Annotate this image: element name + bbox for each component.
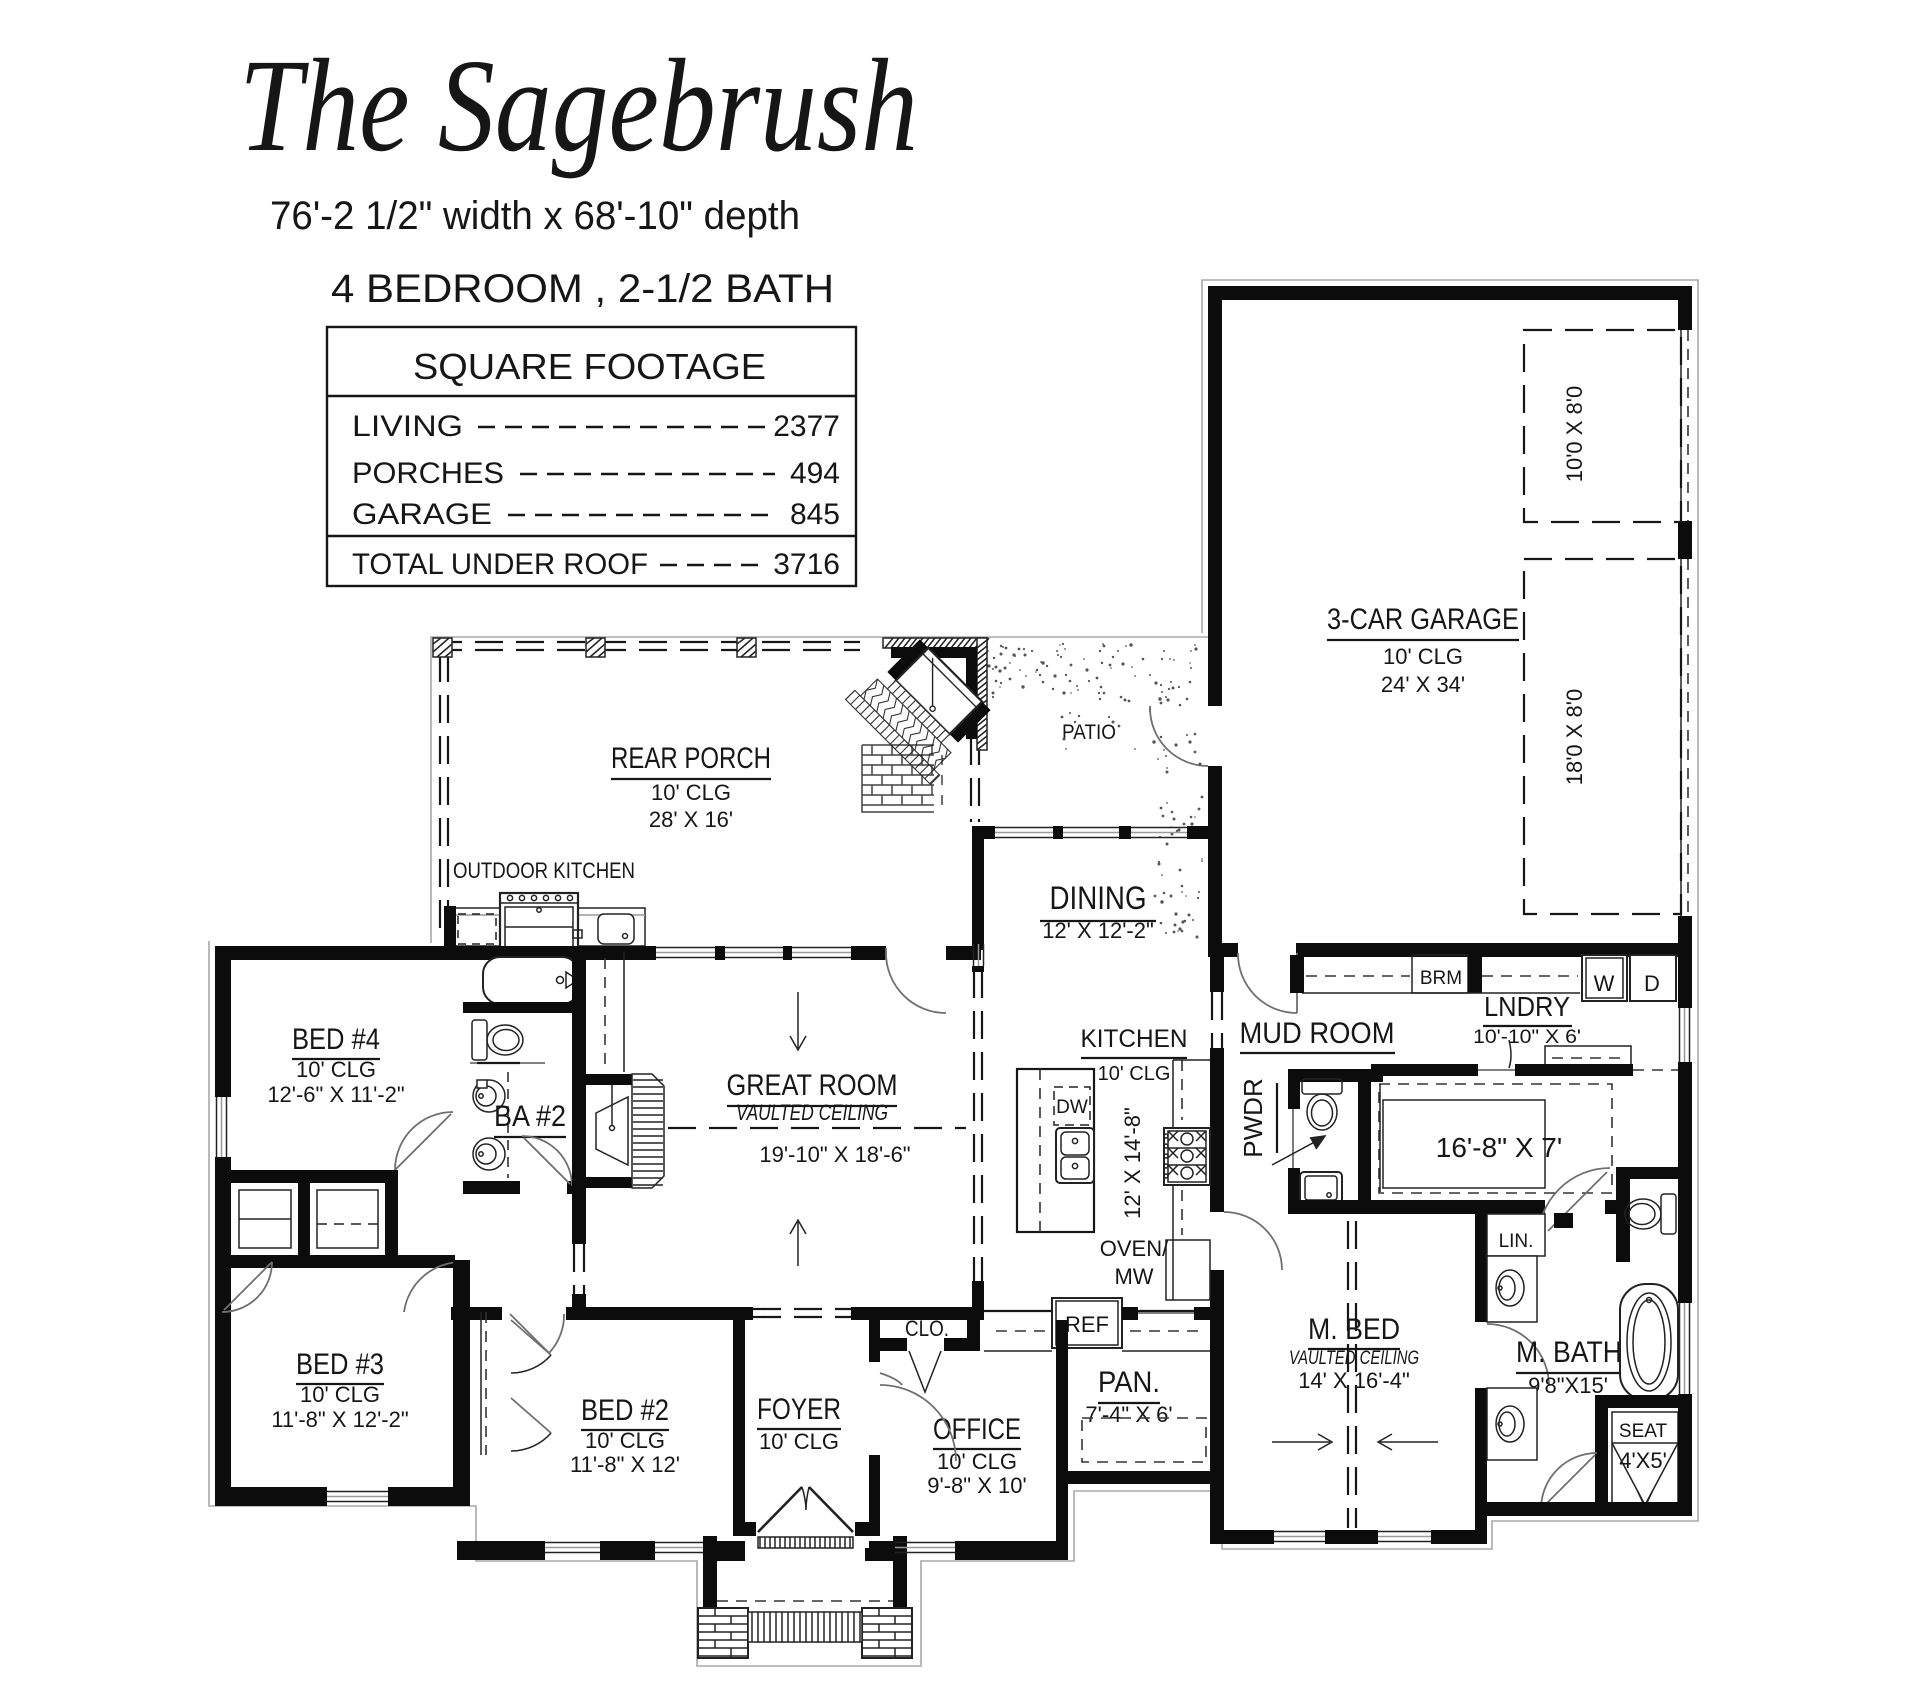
- svg-text:OUTDOOR KITCHEN: OUTDOOR KITCHEN: [453, 858, 635, 883]
- svg-text:LIN.: LIN.: [1499, 1231, 1534, 1252]
- svg-text:3716: 3716: [773, 548, 840, 581]
- svg-text:10' CLG: 10' CLG: [759, 1429, 839, 1454]
- svg-text:W: W: [1594, 971, 1615, 996]
- svg-text:10' CLG: 10' CLG: [585, 1428, 665, 1453]
- svg-text:SQUARE FOOTAGE: SQUARE FOOTAGE: [413, 346, 766, 387]
- svg-text:TOTAL UNDER ROOF: TOTAL UNDER ROOF: [352, 548, 648, 581]
- svg-text:845: 845: [790, 498, 840, 531]
- svg-text:OVEN/: OVEN/: [1100, 1236, 1169, 1261]
- svg-text:DW: DW: [1056, 1097, 1088, 1118]
- svg-text:12' X 14'-8": 12' X 14'-8": [1120, 1107, 1145, 1219]
- svg-text:GREAT ROOM: GREAT ROOM: [727, 1069, 898, 1102]
- svg-text:PWDR: PWDR: [1238, 1078, 1268, 1157]
- svg-text:10' CLG: 10' CLG: [937, 1449, 1017, 1474]
- svg-text:VAULTED CEILING: VAULTED CEILING: [1289, 1348, 1419, 1369]
- svg-text:GARAGE: GARAGE: [352, 498, 492, 531]
- svg-text:494: 494: [790, 457, 840, 490]
- svg-text:MUD ROOM: MUD ROOM: [1240, 1017, 1395, 1050]
- svg-text:10'0 X 8'0: 10'0 X 8'0: [1562, 386, 1587, 482]
- svg-text:11'-8" X 12'-2": 11'-8" X 12'-2": [271, 1407, 408, 1432]
- svg-text:KITCHEN: KITCHEN: [1081, 1025, 1188, 1053]
- svg-text:7'-4" X 6': 7'-4" X 6': [1085, 1402, 1172, 1427]
- svg-text:PAN.: PAN.: [1098, 1366, 1160, 1399]
- svg-text:BED #2: BED #2: [581, 1394, 669, 1427]
- svg-text:CLO.: CLO.: [905, 1316, 949, 1341]
- svg-text:10' CLG: 10' CLG: [651, 780, 731, 805]
- svg-text:BRM: BRM: [1420, 968, 1462, 989]
- svg-text:PATIO: PATIO: [1062, 721, 1116, 744]
- svg-text:OFFICE: OFFICE: [933, 1413, 1021, 1446]
- svg-text:9'8"X15': 9'8"X15': [1528, 1373, 1608, 1398]
- svg-text:VAULTED CEILING: VAULTED CEILING: [736, 1100, 888, 1125]
- svg-text:M. BED: M. BED: [1308, 1313, 1400, 1346]
- svg-text:12'-6" X 11'-2": 12'-6" X 11'-2": [267, 1082, 404, 1107]
- svg-text:LIVING: LIVING: [352, 410, 463, 443]
- svg-text:BED #4: BED #4: [292, 1023, 380, 1056]
- svg-text:24' X 34': 24' X 34': [1381, 672, 1465, 697]
- svg-text:FOYER: FOYER: [757, 1393, 841, 1426]
- svg-text:PORCHES: PORCHES: [352, 457, 504, 490]
- svg-text:3-CAR GARAGE: 3-CAR GARAGE: [1327, 603, 1519, 636]
- svg-text:LNDRY: LNDRY: [1484, 991, 1570, 1022]
- svg-text:18'0 X 8'0: 18'0 X 8'0: [1562, 689, 1587, 785]
- svg-text:2377: 2377: [773, 410, 840, 443]
- svg-text:10' CLG: 10' CLG: [1383, 644, 1463, 669]
- svg-text:4 BEDROOM , 2-1/2 BATH: 4 BEDROOM , 2-1/2 BATH: [331, 267, 834, 311]
- svg-text:BA #2: BA #2: [494, 1100, 566, 1133]
- svg-text:10'-10" X 6': 10'-10" X 6': [1473, 1027, 1581, 1048]
- svg-text:The Sagebrush: The Sagebrush: [239, 31, 918, 179]
- svg-text:10' CLG: 10' CLG: [1098, 1063, 1171, 1085]
- svg-text:M. BATH: M. BATH: [1516, 1336, 1622, 1369]
- svg-text:76'-2 1/2" width x 68'-10" dep: 76'-2 1/2" width x 68'-10" depth: [270, 194, 800, 238]
- svg-text:11'-8" X 12': 11'-8" X 12': [570, 1452, 680, 1477]
- svg-text:16'-8" X 7': 16'-8" X 7': [1436, 1132, 1562, 1163]
- svg-text:19'-10" X 18'-6": 19'-10" X 18'-6": [759, 1142, 910, 1167]
- svg-text:REAR PORCH: REAR PORCH: [611, 742, 771, 775]
- svg-text:10' CLG: 10' CLG: [296, 1057, 376, 1082]
- svg-text:DINING: DINING: [1050, 880, 1147, 916]
- svg-text:D: D: [1644, 971, 1660, 996]
- svg-text:28' X 16': 28' X 16': [649, 807, 733, 832]
- svg-text:MW: MW: [1114, 1264, 1153, 1289]
- svg-text:12' X 12'-2": 12' X 12'-2": [1042, 918, 1154, 943]
- svg-text:9'-8" X 10': 9'-8" X 10': [927, 1473, 1026, 1498]
- svg-text:10' CLG: 10' CLG: [300, 1382, 380, 1407]
- svg-text:SEAT: SEAT: [1619, 1421, 1668, 1442]
- svg-text:14' X 16'-4": 14' X 16'-4": [1298, 1368, 1410, 1393]
- svg-text:BED #3: BED #3: [296, 1348, 384, 1381]
- svg-text:REF: REF: [1065, 1312, 1109, 1337]
